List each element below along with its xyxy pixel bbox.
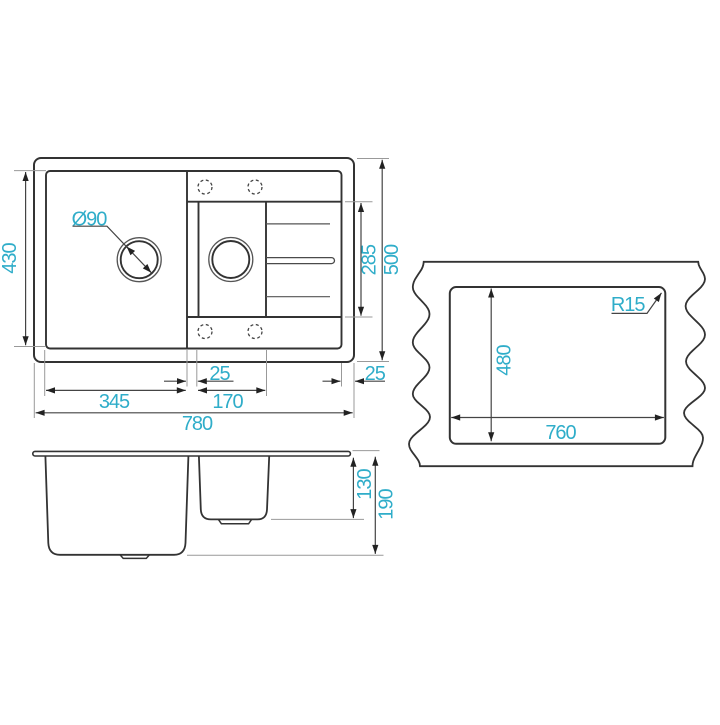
svg-text:760: 760 [545,422,576,444]
svg-text:780: 780 [182,413,213,435]
svg-text:190: 190 [375,489,397,520]
svg-text:25: 25 [365,363,386,385]
svg-text:500: 500 [381,244,403,275]
svg-text:345: 345 [99,391,130,413]
svg-text:25: 25 [209,363,230,385]
svg-text:Ø90: Ø90 [72,209,108,231]
svg-text:R15: R15 [611,294,646,316]
svg-text:170: 170 [212,391,243,413]
svg-text:480: 480 [493,344,515,375]
svg-text:285: 285 [358,244,380,275]
svg-text:130: 130 [354,469,376,500]
svg-text:430: 430 [0,242,21,273]
